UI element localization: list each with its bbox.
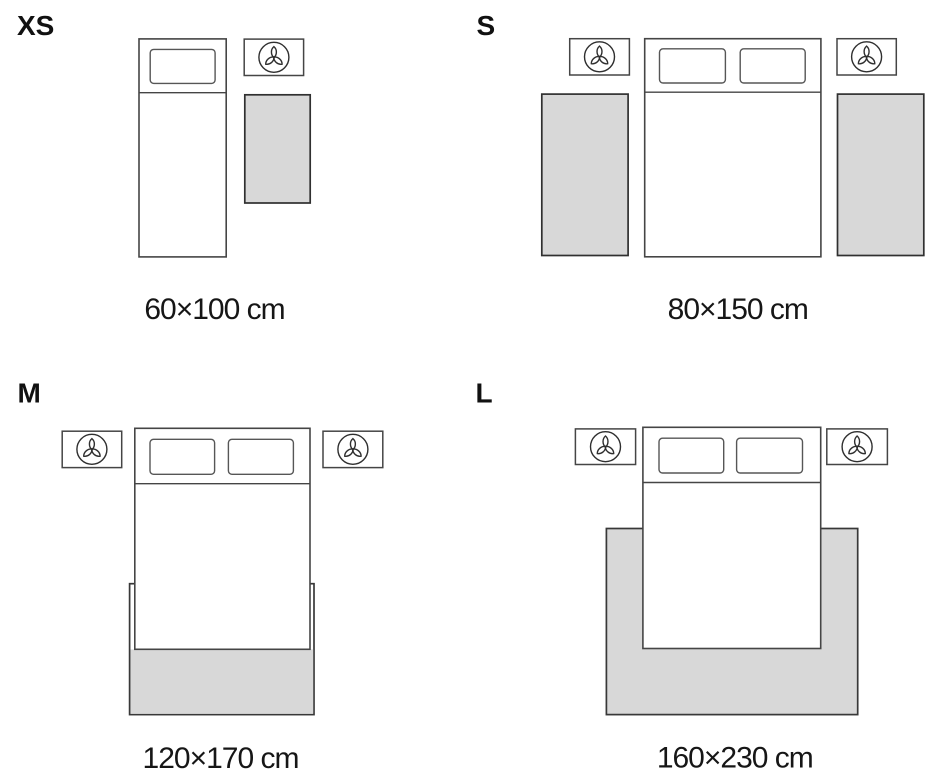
svg-text:60×100 cm: 60×100 cm <box>144 293 284 326</box>
svg-text:120×170 cm: 120×170 cm <box>143 742 299 775</box>
svg-text:L: L <box>476 378 493 409</box>
svg-text:XS: XS <box>17 10 54 41</box>
svg-text:S: S <box>477 10 496 41</box>
svg-text:M: M <box>18 378 41 409</box>
svg-text:160×230 cm: 160×230 cm <box>657 742 813 775</box>
svg-text:80×150 cm: 80×150 cm <box>668 293 808 326</box>
